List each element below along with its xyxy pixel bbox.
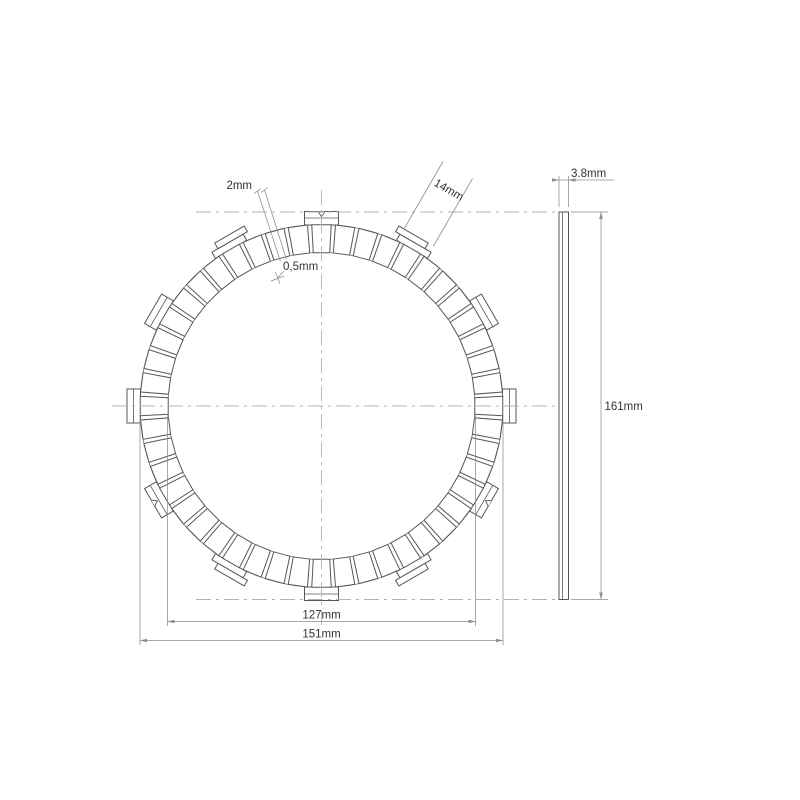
friction-pad (288, 557, 309, 587)
friction-pad (333, 557, 354, 587)
dim-inner-diameter-label: 127mm (302, 610, 340, 622)
arrowhead (599, 212, 603, 219)
friction-pad (288, 225, 309, 255)
arrowhead (496, 639, 503, 643)
plate-edge-outline (559, 212, 569, 600)
arrowhead (552, 178, 559, 182)
friction-pad (472, 373, 502, 394)
arrowhead (140, 639, 147, 643)
arrowhead (599, 593, 603, 600)
dim-friction-diameter-label: 151mm (302, 629, 340, 641)
thickness-extension-lines (552, 176, 614, 207)
dim-pad-gap-label: 2mm (226, 180, 252, 192)
friction-pad (333, 225, 354, 255)
arrowhead (469, 620, 476, 624)
dim-thickness-label: 3.8mm (571, 168, 606, 180)
dim-chamfer-label: 0,5mm (283, 261, 318, 273)
tab-width-extension-lines (404, 162, 473, 247)
overall-extension-lines (571, 212, 608, 600)
arrowhead (168, 620, 175, 624)
friction-pad (141, 373, 171, 394)
dim-overall-diameter-label: 161mm (605, 401, 643, 413)
friction-pad (472, 418, 502, 439)
side-view-plate-edge (559, 212, 569, 600)
oblique-tick (261, 188, 268, 193)
technical-drawing-canvas: 2mm 0,5mm 14mm 127mm 151mm (0, 0, 800, 800)
oblique-tick (254, 189, 261, 194)
friction-pad (141, 418, 171, 439)
dim-tab-width-label: 14mm (432, 177, 466, 203)
